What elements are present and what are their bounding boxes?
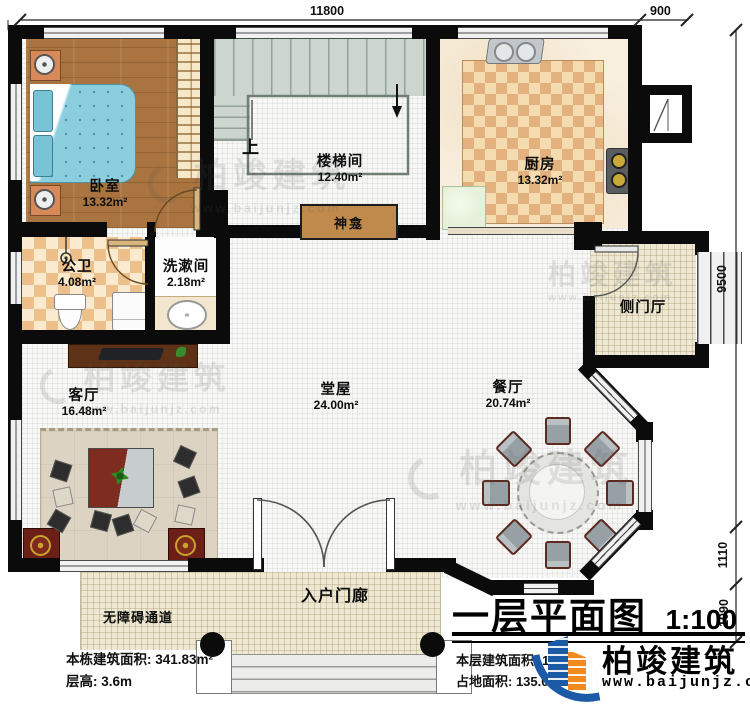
living-window-left (10, 420, 22, 520)
double-door-leaf-right (386, 498, 395, 570)
living-area: 16.48m² (38, 405, 130, 419)
washroom-label: 洗漱间 2.18m² (140, 259, 232, 289)
bedroom-window-left (10, 84, 22, 180)
logo-building-blue-icon (548, 636, 568, 686)
bedroom-window-top (44, 27, 164, 39)
hall-label: 堂屋 24.00m² (288, 382, 384, 412)
bathroom-window-left (10, 252, 22, 304)
porch-label: 入户门廊 (285, 588, 385, 606)
stairwell-label: 楼梯间 12.40m² (290, 154, 390, 184)
wash-sink (167, 300, 207, 330)
bay-wall-east-cap-n (636, 422, 653, 442)
shrine: 神龛 (300, 204, 398, 240)
pedestal-emblem-icon (30, 535, 51, 556)
dining-chair (545, 417, 571, 445)
kitchen-area: 13.32m² (492, 174, 588, 188)
dim-top-right: 900 (650, 4, 671, 18)
plan-scale: 1:100 (665, 604, 737, 635)
dining-label: 餐厅 20.74m² (460, 380, 556, 410)
dining-chair (545, 541, 571, 569)
lamp-icon (34, 189, 55, 210)
shrine-label: 神龛 (334, 213, 364, 232)
bedroom-label: 卧室 13.32m² (60, 179, 150, 209)
burner-icon (611, 153, 627, 169)
kitchen-name: 厨房 (492, 157, 588, 174)
dim-top-width: 11800 (310, 4, 344, 18)
wall-sidehall-left-a (583, 231, 595, 249)
wall-sidehall-bottom (583, 355, 707, 368)
cushion (174, 504, 195, 525)
niche-inner (650, 95, 682, 133)
wall-bedroom-south-c (196, 222, 214, 237)
sink-basin-icon (516, 42, 536, 62)
plan-title-text: 一层平面图 (452, 596, 647, 637)
up-label: 上 (238, 138, 264, 158)
wall-bedroom-stair (200, 34, 214, 237)
wall-sidehall-right-b (695, 342, 709, 368)
dining-chair (606, 480, 634, 506)
dim-right-upper: 9500 (715, 265, 729, 293)
dining-table-top (529, 464, 585, 520)
side-hall-label: 侧门厅 (595, 300, 691, 317)
stair-flight-left (214, 96, 250, 141)
tv (98, 348, 164, 360)
bay-window-east (638, 440, 652, 512)
bedroom-name: 卧室 (60, 179, 150, 196)
bathroom-area: 4.08m² (32, 276, 122, 290)
wall-washroom-east (216, 237, 230, 344)
bathroom-label: 公卫 4.08m² (32, 259, 122, 289)
dim-right-mid: 1110 (716, 542, 730, 568)
side-hall-floor (590, 243, 696, 355)
stairwell-name: 楼梯间 (290, 154, 390, 171)
ramp-label: 无障碍通道 (90, 611, 186, 626)
stair-flight-top (214, 34, 426, 96)
dining-area: 20.74m² (460, 397, 556, 411)
porch-name: 入户门廊 (285, 588, 385, 606)
lamp-icon (34, 54, 55, 75)
double-door-leaf-left (253, 498, 262, 570)
pedestal-emblem-icon (175, 535, 196, 556)
living-window (60, 560, 188, 572)
wall-bath-south (8, 330, 230, 344)
plant-icon (176, 347, 186, 357)
wall-sidehall-left-b (583, 296, 595, 368)
wall-bath-partition (145, 237, 155, 344)
kitchen-cabinet (442, 186, 486, 230)
porch-column-right (420, 632, 445, 657)
wall-sidehall-top (583, 231, 707, 244)
kitchen-threshold (448, 227, 574, 235)
stair-window-top (236, 27, 412, 39)
dining-chair (482, 480, 510, 506)
dining-name: 餐厅 (460, 380, 556, 397)
brand-logo (536, 634, 600, 702)
washroom-name: 洗漱间 (140, 259, 232, 276)
washroom-area: 2.18m² (140, 276, 232, 290)
toilet (54, 294, 86, 310)
info-right-line2: 占地面积: 135.0 (456, 671, 548, 690)
entry-steps (227, 654, 437, 694)
ramp-name: 无障碍通道 (90, 611, 186, 626)
info-left-line2: 层高: 3.6m (66, 670, 132, 690)
hall-name: 堂屋 (288, 382, 384, 399)
hall-area: 24.00m² (288, 399, 384, 413)
wall-bedroom-south-b (147, 222, 156, 237)
stairwell-area: 12.40m² (290, 171, 390, 185)
kitchen-label: 厨房 13.32m² (492, 157, 588, 187)
bedroom-area: 13.32m² (60, 196, 150, 210)
washing-machine (112, 292, 147, 331)
wall-stair-south-c (392, 225, 440, 238)
burner-icon (611, 172, 627, 188)
up-text: 上 (238, 138, 264, 158)
wall-stair-south-b (228, 225, 302, 238)
info-left-line1: 本栋建筑面积: 341.83m² (66, 648, 213, 668)
porch-floor (230, 572, 441, 654)
living-label: 客厅 16.48m² (38, 388, 130, 418)
wall-bedroom-south-a (8, 222, 107, 237)
sink-basin-icon (494, 42, 514, 62)
bathroom-name: 公卫 (32, 259, 122, 276)
brand-website: www.baijunjz.com (602, 674, 750, 691)
bed-pillow-1 (33, 90, 53, 132)
wall-stair-kitchen (426, 34, 440, 240)
wall-south-a (8, 558, 60, 572)
living-name: 客厅 (38, 388, 130, 405)
kitchen-window-top (458, 27, 608, 39)
bed-pillow-2 (33, 135, 53, 177)
wall-stair-south-a (214, 190, 228, 238)
floor-plan: 神龛 (0, 0, 750, 704)
cushion (52, 486, 73, 507)
side-hall-name: 侧门厅 (595, 300, 691, 317)
